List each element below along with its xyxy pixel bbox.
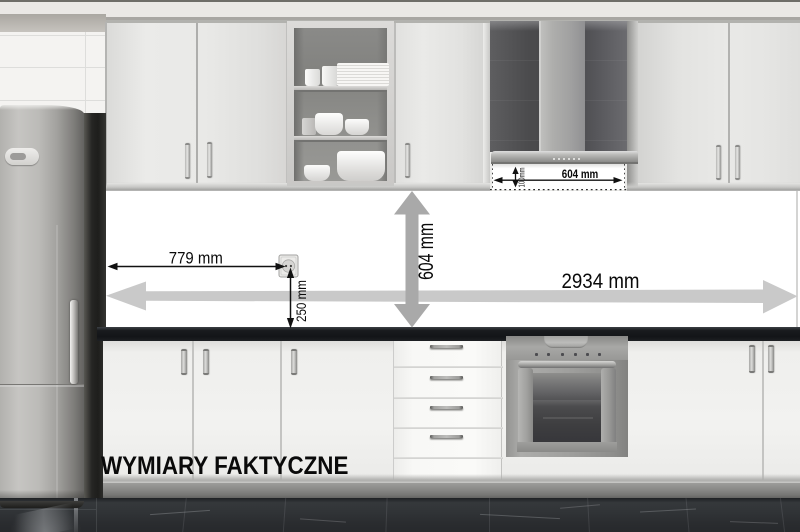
svg-text:250 mm: 250 mm	[294, 280, 309, 322]
svg-text:100mm: 100mm	[517, 168, 527, 188]
svg-text:604 mm: 604 mm	[415, 223, 438, 280]
svg-text:779 mm: 779 mm	[169, 250, 223, 268]
svg-text:604 mm: 604 mm	[562, 167, 599, 181]
svg-text:2934 mm: 2934 mm	[562, 270, 640, 293]
